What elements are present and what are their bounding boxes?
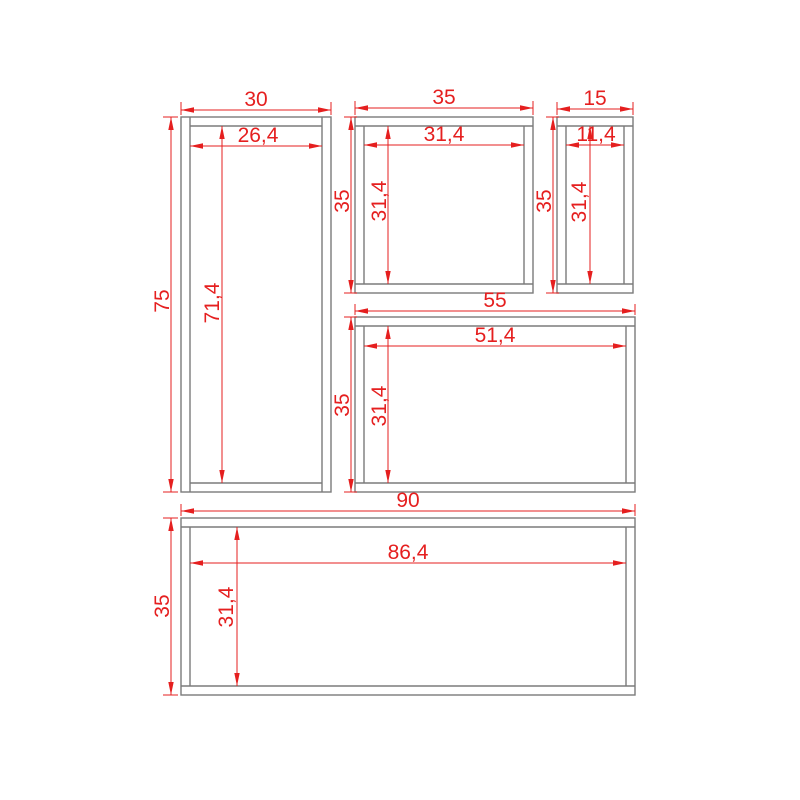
dim-arrowhead xyxy=(364,343,377,348)
technical-drawing: 3026,47571,43531,43531,41511,43531,45551… xyxy=(0,0,800,800)
dim-arrowhead xyxy=(181,107,194,112)
dim-tall-outer-height: 75 xyxy=(151,117,178,492)
dim-topright-inner-height-label: 31,4 xyxy=(568,181,591,222)
dim-topright-outer-height: 35 xyxy=(533,117,559,293)
dim-bottom-outer-height: 35 xyxy=(151,518,178,695)
dim-tall-outer-width: 30 xyxy=(181,88,331,115)
dim-arrowhead xyxy=(613,560,626,565)
dim-arrowhead xyxy=(520,105,533,110)
dim-midwide-inner-width: 51,4 xyxy=(364,324,626,349)
dim-topmid-outer-width: 35 xyxy=(355,86,533,115)
dim-topmid-inner-width-label: 31,4 xyxy=(424,123,465,146)
dim-topmid-inner-height: 31,4 xyxy=(368,126,391,284)
dim-arrowhead xyxy=(557,106,570,111)
dim-arrowhead xyxy=(385,271,390,284)
dim-arrowhead xyxy=(190,143,203,148)
dim-midwide-inner-width-label: 51,4 xyxy=(475,324,516,347)
dim-bottom-inner-height-label: 31,4 xyxy=(215,586,238,627)
dim-arrowhead xyxy=(168,479,173,492)
dim-arrowhead xyxy=(622,308,635,313)
dim-arrowhead xyxy=(318,107,331,112)
dim-topright-inner-width-label: 11,4 xyxy=(576,123,616,146)
dim-bottom-outer-width: 90 xyxy=(181,489,635,516)
dim-arrowhead xyxy=(168,682,173,695)
dim-arrowhead xyxy=(385,326,390,339)
dim-topright-outer-width: 15 xyxy=(557,87,633,115)
dim-arrowhead xyxy=(620,106,633,111)
dim-arrowhead xyxy=(348,117,353,130)
dim-midwide-outer-height: 35 xyxy=(331,317,357,492)
dim-arrowhead xyxy=(511,142,524,147)
dim-arrowhead xyxy=(348,479,353,492)
dim-arrowhead xyxy=(348,317,353,330)
dim-arrowhead xyxy=(234,673,239,686)
dim-topright-inner-width: 11,4 xyxy=(566,123,624,148)
dim-topright-outer-height-label: 35 xyxy=(533,189,556,212)
dim-arrowhead xyxy=(348,280,353,293)
dim-tall-outer-height-label: 75 xyxy=(151,289,174,312)
dim-tall-inner-height-label: 71,4 xyxy=(201,282,224,323)
dim-bottom-inner-width: 86,4 xyxy=(190,541,626,566)
dim-arrowhead xyxy=(168,117,173,130)
dim-arrowhead xyxy=(234,527,239,540)
dim-arrowhead xyxy=(550,280,555,293)
dim-arrowhead xyxy=(190,560,203,565)
dim-arrowhead xyxy=(219,470,224,483)
dim-topright-outer-width-label: 15 xyxy=(583,87,606,110)
dim-topmid-outer-height: 35 xyxy=(331,117,357,293)
dim-tall-outer-width-label: 30 xyxy=(244,88,267,111)
dim-tall-inner-width: 26,4 xyxy=(190,124,322,149)
dim-topmid-outer-height-label: 35 xyxy=(331,189,354,212)
dim-bottom-outer-height-label: 35 xyxy=(151,594,174,617)
dim-arrowhead xyxy=(181,508,194,513)
dim-topright-inner-height: 31,4 xyxy=(568,126,593,284)
dim-arrowhead xyxy=(613,343,626,348)
dim-midwide-inner-height-label: 31,4 xyxy=(368,385,391,426)
dim-bottom-outer-width-label: 90 xyxy=(396,489,419,512)
dim-arrowhead xyxy=(168,518,173,531)
dim-arrowhead xyxy=(622,508,635,513)
dim-arrowhead xyxy=(219,126,224,139)
dim-bottom-inner-width-label: 86,4 xyxy=(388,541,429,564)
dim-arrowhead xyxy=(587,271,592,284)
dim-midwide-outer-width-label: 55 xyxy=(483,289,506,312)
dim-arrowhead xyxy=(385,126,390,139)
dim-topmid-outer-width-label: 35 xyxy=(432,86,455,109)
dim-arrowhead xyxy=(550,117,555,130)
dim-arrowhead xyxy=(355,105,368,110)
dim-tall-inner-width-label: 26,4 xyxy=(238,124,279,147)
drawing-canvas: 3026,47571,43531,43531,41511,43531,45551… xyxy=(0,0,800,800)
dim-bottom-inner-height: 31,4 xyxy=(215,527,240,686)
dim-tall-inner-height: 71,4 xyxy=(201,126,225,483)
dim-arrowhead xyxy=(385,470,390,483)
dim-topmid-inner-height-label: 31,4 xyxy=(368,180,391,221)
dim-arrowhead xyxy=(309,143,322,148)
dim-arrowhead xyxy=(364,142,377,147)
dim-midwide-outer-height-label: 35 xyxy=(331,393,354,416)
dim-midwide-inner-height: 31,4 xyxy=(368,326,391,483)
dim-arrowhead xyxy=(355,308,368,313)
